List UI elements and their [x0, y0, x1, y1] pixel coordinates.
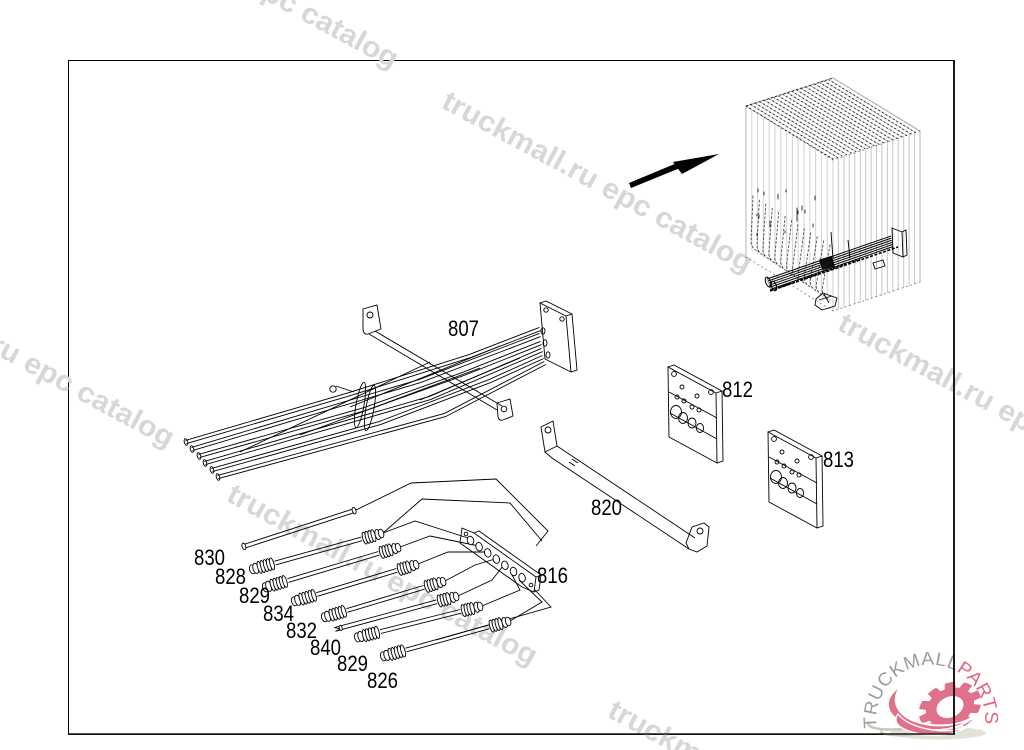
- svg-text:truckmall.ru epc catalog: truckmall.ru epc catalog: [222, 478, 543, 672]
- svg-text:820: 820: [591, 495, 622, 520]
- svg-text:816: 816: [537, 563, 568, 588]
- svg-text:829: 829: [337, 651, 368, 676]
- svg-text:813: 813: [823, 447, 854, 472]
- svg-text:truckmall.ru epc catalog: truckmall.ru epc catalog: [437, 85, 758, 279]
- svg-text:truckmall.ru epc catalog: truckmall.ru epc catalog: [83, 0, 404, 75]
- svg-text:truckmall.ru epc catalog: truckmall.ru epc catalog: [833, 307, 1024, 501]
- svg-text:807: 807: [448, 316, 479, 341]
- svg-text:truckmall.ru epc catalog: truckmall.ru epc catalog: [0, 260, 180, 454]
- svg-text:812: 812: [722, 377, 753, 402]
- svg-text:826: 826: [367, 668, 398, 693]
